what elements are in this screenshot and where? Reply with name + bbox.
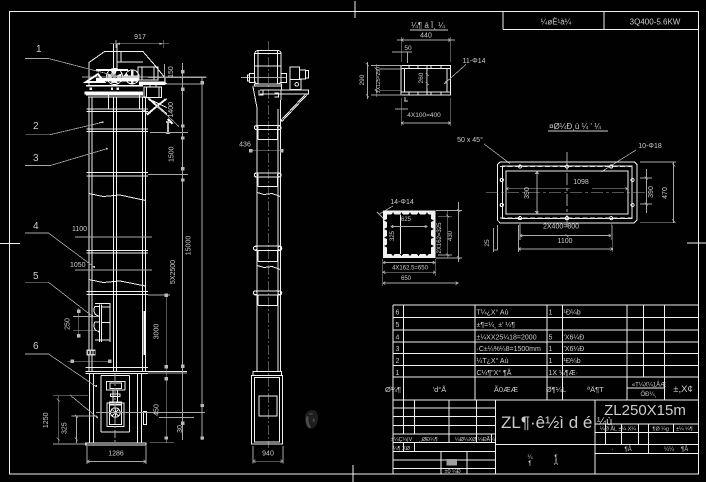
svg-text:4X100=400: 4X100=400 [407, 112, 441, 119]
svg-text:625: 625 [401, 217, 412, 223]
svg-text:1050: 1050 [70, 262, 86, 269]
svg-text:ZL250X15m: ZL250X15m [604, 402, 686, 419]
svg-text:ªÄ¶T: ªÄ¶T [587, 385, 604, 394]
svg-text:±,X¢: ±,X¢ [673, 384, 692, 395]
svg-text:«T¼X¼1ÅÆ: «T¼X¼1ÅÆ [632, 382, 666, 389]
svg-text:¼¶ á Ï¸ ¼: ¼¶ á Ï¸ ¼ [411, 21, 445, 30]
svg-text:15000: 15000 [186, 236, 193, 256]
svg-text:940: 940 [262, 451, 274, 458]
svg-text:470: 470 [662, 187, 669, 199]
svg-text:2: 2 [33, 121, 39, 132]
svg-text:¼T¿X° Aù: ¼T¿X° Aù [477, 357, 509, 365]
svg-text:250: 250 [65, 318, 72, 330]
svg-text:±¶=¼¸ ±' ¼¶: ±¶=¼¸ ±' ¼¶ [477, 322, 516, 329]
svg-text:2: 2 [396, 358, 400, 365]
svg-text:Ø¶¼L: Ø¶¼L [546, 385, 566, 394]
svg-text:Å: Å [554, 460, 558, 467]
svg-text:440: 440 [420, 33, 432, 40]
svg-text:1500: 1500 [169, 146, 176, 162]
svg-text:4: 4 [33, 221, 39, 232]
svg-text:1: 1 [549, 346, 553, 353]
svg-text:1100: 1100 [557, 238, 572, 245]
svg-text:·: · [612, 447, 614, 453]
svg-text:'X6¼Ð: 'X6¼Ð [564, 334, 585, 341]
svg-text:25: 25 [484, 239, 491, 247]
svg-text:1: 1 [549, 310, 553, 317]
svg-text:¶Ø ¼g: ¶Ø ¼g [653, 427, 669, 433]
svg-text:±0 ¼Ð: ±0 ¼Ð [445, 469, 461, 475]
svg-text:'X6¼Ð: 'X6¼Ð [564, 346, 585, 353]
svg-text:¼Ø ÃL ±¼ X¼: ¼Ø ÃL ±¼ X¼ [600, 426, 636, 433]
svg-text:325: 325 [62, 422, 69, 434]
svg-text:6: 6 [33, 341, 39, 352]
svg-text:¹Ð¼b: ¹Ð¼b [564, 358, 581, 365]
svg-text:±¼XX25¼18=2000: ±¼XX25¼18=2000 [477, 334, 537, 341]
svg-text:¶Å: ¶Å [681, 446, 688, 453]
svg-text:1400: 1400 [168, 102, 175, 118]
svg-text:1: 1 [396, 370, 400, 377]
svg-text:1: 1 [36, 44, 42, 55]
svg-text:¼Ø¼XØ: ¼Ø¼XØ [455, 437, 477, 443]
svg-text:6: 6 [396, 310, 400, 317]
svg-text:¸,ØÐ¼¶: ¸,ØÐ¼¶ [419, 437, 438, 443]
svg-text:1250: 1250 [43, 412, 50, 428]
svg-text:1X ¼¶Æ·: 1X ¼¶Æ· [549, 370, 578, 377]
svg-text:2X125=250: 2X125=250 [376, 67, 382, 93]
svg-text:Ø¼¶: Ø¼¶ [385, 385, 401, 394]
svg-text:1: 1 [549, 358, 553, 365]
svg-text:1100: 1100 [72, 226, 87, 233]
svg-text:3: 3 [33, 153, 39, 164]
svg-text:14-Φ14: 14-Φ14 [390, 199, 414, 206]
svg-text:5X2500: 5X2500 [170, 260, 177, 284]
svg-text:ZL¶·ê½ì d é: ZL¶·ê½ì d é [501, 413, 592, 432]
svg-text:¼¶ XØ: ¼¶ XØ [393, 446, 411, 452]
svg-text:4: 4 [396, 334, 400, 341]
svg-text:50: 50 [404, 45, 412, 52]
svg-text:3: 3 [396, 346, 400, 353]
svg-text:4X162.5=650: 4X162.5=650 [392, 266, 429, 272]
svg-text:¶: ¶ [528, 461, 531, 467]
svg-text:30: 30 [177, 425, 184, 433]
svg-text:T¼¿X° Aù: T¼¿X° Aù [477, 309, 509, 317]
svg-text:2X162=325: 2X162=325 [437, 222, 443, 254]
svg-text:¼ÐÃ¼: ¼ÐÃ¼ [478, 436, 495, 443]
svg-text:1286: 1286 [108, 451, 124, 458]
svg-text:436: 436 [239, 142, 251, 149]
svg-text:'d°Å: 'd°Å [433, 385, 447, 394]
svg-text:10-Φ18: 10-Φ18 [638, 143, 662, 150]
svg-text:5: 5 [33, 271, 39, 282]
svg-text:325: 325 [390, 230, 396, 241]
svg-text:¼¼: ¼¼ [664, 447, 675, 453]
svg-text:¼øÈ¹à¼: ¼øÈ¹à¼ [541, 18, 572, 27]
svg-text:3000: 3000 [154, 324, 161, 340]
svg-text:3Q400-5.6KW: 3Q400-5.6KW [630, 18, 681, 27]
svg-text:1098: 1098 [573, 179, 589, 186]
svg-text:50 x 45°: 50 x 45° [457, 136, 483, 144]
svg-text:C¼¶"X° ¶Å: C¼¶"X° ¶Å [477, 368, 512, 377]
svg-text:Ã0ÆÆ: Ã0ÆÆ [494, 385, 519, 394]
svg-text:430: 430 [448, 230, 454, 241]
svg-text:290: 290 [359, 74, 366, 85]
svg-text:11-Φ14: 11-Φ14 [463, 58, 486, 65]
svg-text:ÖÐ¼¸: ÖÐ¼¸ [640, 391, 656, 398]
svg-text:¶Å: ¶Å [625, 446, 632, 453]
svg-text:5: 5 [396, 322, 400, 329]
svg-text:5: 5 [549, 334, 553, 341]
svg-text:260: 260 [418, 72, 425, 83]
svg-text:150: 150 [168, 66, 175, 78]
svg-text:¤Ø¼Ð¸ù ¼ ' ¼: ¤Ø¼Ð¸ù ¼ ' ¼ [549, 122, 601, 131]
svg-text:·C±¼%¼8=1500mm: ·C±¼%¼8=1500mm [477, 346, 542, 353]
svg-text:390: 390 [524, 187, 531, 199]
svg-text:450: 450 [154, 404, 161, 416]
svg-text:650: 650 [401, 276, 412, 282]
svg-text:390: 390 [648, 186, 655, 198]
svg-text:¹Ð¼b: ¹Ð¼b [564, 310, 581, 317]
svg-text:±¼ ¼¶: ±¼ ¼¶ [676, 427, 693, 433]
svg-text:±¼Ç¼|V: ±¼Ç¼|V [391, 437, 413, 443]
svg-text:2X400=800: 2X400=800 [543, 224, 579, 231]
svg-text:917: 917 [134, 34, 146, 41]
